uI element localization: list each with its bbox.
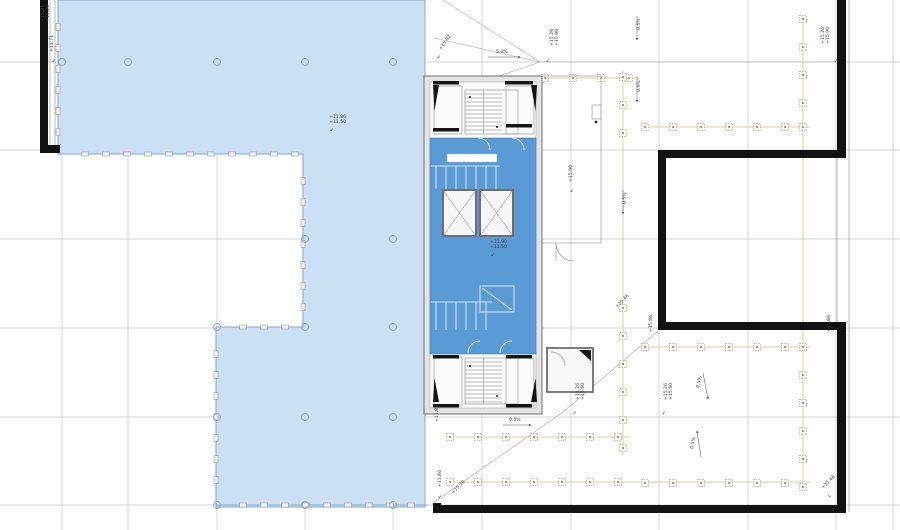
mullion-tick — [261, 325, 268, 329]
pedestal-marker-dot — [617, 436, 619, 438]
level-annotation: +11.86+11.50 — [329, 114, 346, 125]
slope-label: 0.5% — [622, 192, 628, 204]
slope-arrow — [697, 431, 701, 457]
pedestal-marker-dot — [622, 419, 624, 421]
terrace-dot — [595, 121, 598, 124]
pedestal-marker-dot — [728, 346, 730, 348]
pedestal-marker-dot — [589, 436, 591, 438]
leader-arrow: ↘ — [827, 494, 831, 499]
pedestal-marker-dot — [728, 482, 730, 484]
pedestal-marker-dot — [572, 77, 574, 79]
pedestal-marker-dot — [784, 346, 786, 348]
pedestal-marker-dot — [505, 481, 507, 483]
pedestal-marker-dot — [561, 481, 563, 483]
structural-wall — [433, 505, 846, 513]
pedestal-marker-dot — [802, 18, 804, 20]
leader-arrow: ↙ — [438, 495, 442, 500]
roof-valley-line — [443, 0, 540, 62]
slope-label: 0.5% — [689, 436, 697, 449]
pedestal-marker-dot — [589, 481, 591, 483]
slope-label: 5.0% — [496, 49, 508, 55]
pedestal-marker-dot — [756, 126, 758, 128]
mullion-tick — [345, 503, 352, 507]
slope-label: 0.5% — [636, 80, 642, 92]
pedestal-marker-dot — [505, 436, 507, 438]
mullion-tick — [214, 351, 218, 358]
mullion-tick — [408, 503, 415, 507]
level-annotation: +11.86 — [434, 405, 440, 422]
mullion-tick — [214, 477, 218, 484]
mullion-tick — [208, 152, 215, 156]
pedestal-marker-dot — [700, 346, 702, 348]
leader-arrow: ↙ — [573, 411, 577, 416]
level-annotation: +15.26+15.90 — [549, 29, 560, 46]
structural-wall — [40, 145, 60, 153]
pedestal-marker-dot — [700, 126, 702, 128]
pedestal-marker-dot — [802, 346, 804, 348]
pedestal-marker-dot — [802, 374, 804, 376]
pedestal-marker-dot — [561, 436, 563, 438]
leader-arrow: ↙ — [491, 253, 495, 258]
pedestal-marker-dot — [477, 481, 479, 483]
leader-arrow: ↙ — [546, 59, 550, 64]
pedestal-marker-dot — [617, 481, 619, 483]
mullion-tick — [301, 220, 305, 227]
mullion-tick — [214, 393, 218, 400]
level-annotation: +15.46 — [820, 474, 836, 490]
floor-plan-page: +15.31+15.26+11.71↙+11.86+11.50↙+15.82↙+… — [0, 0, 900, 530]
pedestal-marker-dot — [644, 126, 646, 128]
mullion-tick — [103, 152, 110, 156]
pedestal-marker-dot — [672, 482, 674, 484]
pedestal-marker-dot — [622, 76, 624, 78]
pedestal-marker-dot — [622, 391, 624, 393]
pedestal-marker-dot — [533, 436, 535, 438]
pedestal-marker-dot — [700, 482, 702, 484]
mullion-tick — [214, 372, 218, 379]
leader-arrow: ↙ — [834, 59, 838, 64]
pedestal-marker-dot — [544, 77, 546, 79]
structural-wall — [658, 150, 666, 330]
pedestal-marker-dot — [533, 481, 535, 483]
level-annotation: +15.90 — [568, 165, 574, 182]
mullion-tick — [240, 503, 247, 507]
level-annotation: +11.71 — [49, 35, 55, 52]
service-core — [424, 76, 542, 414]
pedestal-marker-dot — [449, 436, 451, 438]
pedestal-marker-dot — [802, 402, 804, 404]
mullion-tick — [250, 152, 257, 156]
slope-label: 0.5% — [636, 18, 642, 30]
mullion-tick — [124, 152, 131, 156]
mullion-tick — [214, 456, 218, 463]
pedestal-marker-dot — [644, 482, 646, 484]
structural-wall — [837, 322, 846, 512]
pedestal-marker-dot — [784, 126, 786, 128]
level-annotation: +11.90+11.50 — [490, 239, 507, 250]
floor-plan-canvas: +15.31+15.26+11.71↙+11.86+11.50↙+15.82↙+… — [0, 0, 900, 530]
pedestal-marker-dot — [802, 430, 804, 432]
pedestal-marker-dot — [622, 335, 624, 337]
mullion-tick — [187, 152, 194, 156]
pedestal-marker-dot — [622, 132, 624, 134]
mullion-tick — [366, 503, 373, 507]
mullion-tick — [145, 152, 152, 156]
structural-wall — [658, 322, 846, 330]
level-annotation: +15.26+15.90 — [663, 383, 674, 400]
level-annotation: +15.86 — [648, 315, 654, 332]
structural-wall — [658, 150, 846, 158]
mullion-tick — [301, 304, 305, 311]
pedestal-marker-dot — [644, 346, 646, 348]
pedestal-marker-dot — [672, 346, 674, 348]
mullion-tick — [56, 129, 60, 136]
mullion-tick — [56, 87, 60, 94]
mullion-tick — [301, 178, 305, 185]
office-floor-area — [58, 0, 425, 507]
leader-arrow: ↙ — [330, 128, 334, 133]
leader-arrow: ↙ — [570, 189, 574, 194]
slope-arrow — [703, 373, 708, 399]
mullion-tick — [261, 503, 268, 507]
pedestal-marker-dot — [622, 447, 624, 449]
slope-label: 0.5% — [509, 417, 521, 423]
level-annotation: +15.31+15.26 — [40, 5, 51, 22]
mullion-tick — [282, 503, 289, 507]
pedestal-marker-dot — [802, 486, 804, 488]
pedestal-marker-dot — [756, 346, 758, 348]
mullion-tick — [301, 199, 305, 206]
pedestal-marker-dot — [477, 436, 479, 438]
pedestal-marker-dot — [672, 126, 674, 128]
level-annotation: +15.86 — [826, 315, 832, 332]
leader-arrow: ↙ — [52, 59, 56, 64]
pedestal-marker-dot — [622, 307, 624, 309]
structural-wall — [837, 0, 846, 158]
mullion-tick — [301, 283, 305, 290]
mullion-tick — [282, 325, 289, 329]
mullion-tick — [56, 66, 60, 73]
mullion-tick — [324, 503, 331, 507]
pedestal-marker-dot — [628, 77, 630, 79]
level-annotation: +15.26+15.90 — [575, 383, 586, 400]
mullion-tick — [240, 325, 247, 329]
structural-wall — [433, 503, 441, 513]
mullion-tick — [56, 45, 60, 52]
pedestal-marker-dot — [622, 104, 624, 106]
mullion-tick — [56, 108, 60, 115]
pedestal-marker-dot — [802, 102, 804, 104]
mullion-tick — [271, 152, 278, 156]
mullion-tick — [166, 152, 173, 156]
level-annotation: +11.86 — [437, 470, 443, 487]
leader-arrow: ↙ — [662, 411, 666, 416]
terrace-fixture — [592, 105, 601, 119]
pedestal-marker-dot — [784, 482, 786, 484]
pedestal-marker-dot — [728, 126, 730, 128]
slope-label: 0.5% — [695, 375, 703, 388]
mullion-tick — [292, 152, 299, 156]
pedestal-marker-dot — [802, 458, 804, 460]
level-annotation: +15.82 — [438, 34, 453, 51]
mullion-tick — [214, 435, 218, 442]
mullion-tick — [82, 152, 89, 156]
pedestal-marker-dot — [802, 46, 804, 48]
leader-arrow: ↙ — [437, 55, 441, 60]
pedestal-marker-dot — [622, 363, 624, 365]
floor-area-light-blue — [58, 0, 425, 507]
pedestal-marker-dot — [449, 481, 451, 483]
pedestal-marker-dot — [756, 482, 758, 484]
mullion-tick — [56, 24, 60, 31]
pedestal-marker-dot — [802, 74, 804, 76]
mullion-tick — [301, 262, 305, 269]
pedestal-marker-dot — [802, 126, 804, 128]
roof-valley-line — [434, 38, 540, 62]
mullion-tick — [229, 152, 236, 156]
level-annotation: +15.26+15.90 — [820, 27, 831, 44]
